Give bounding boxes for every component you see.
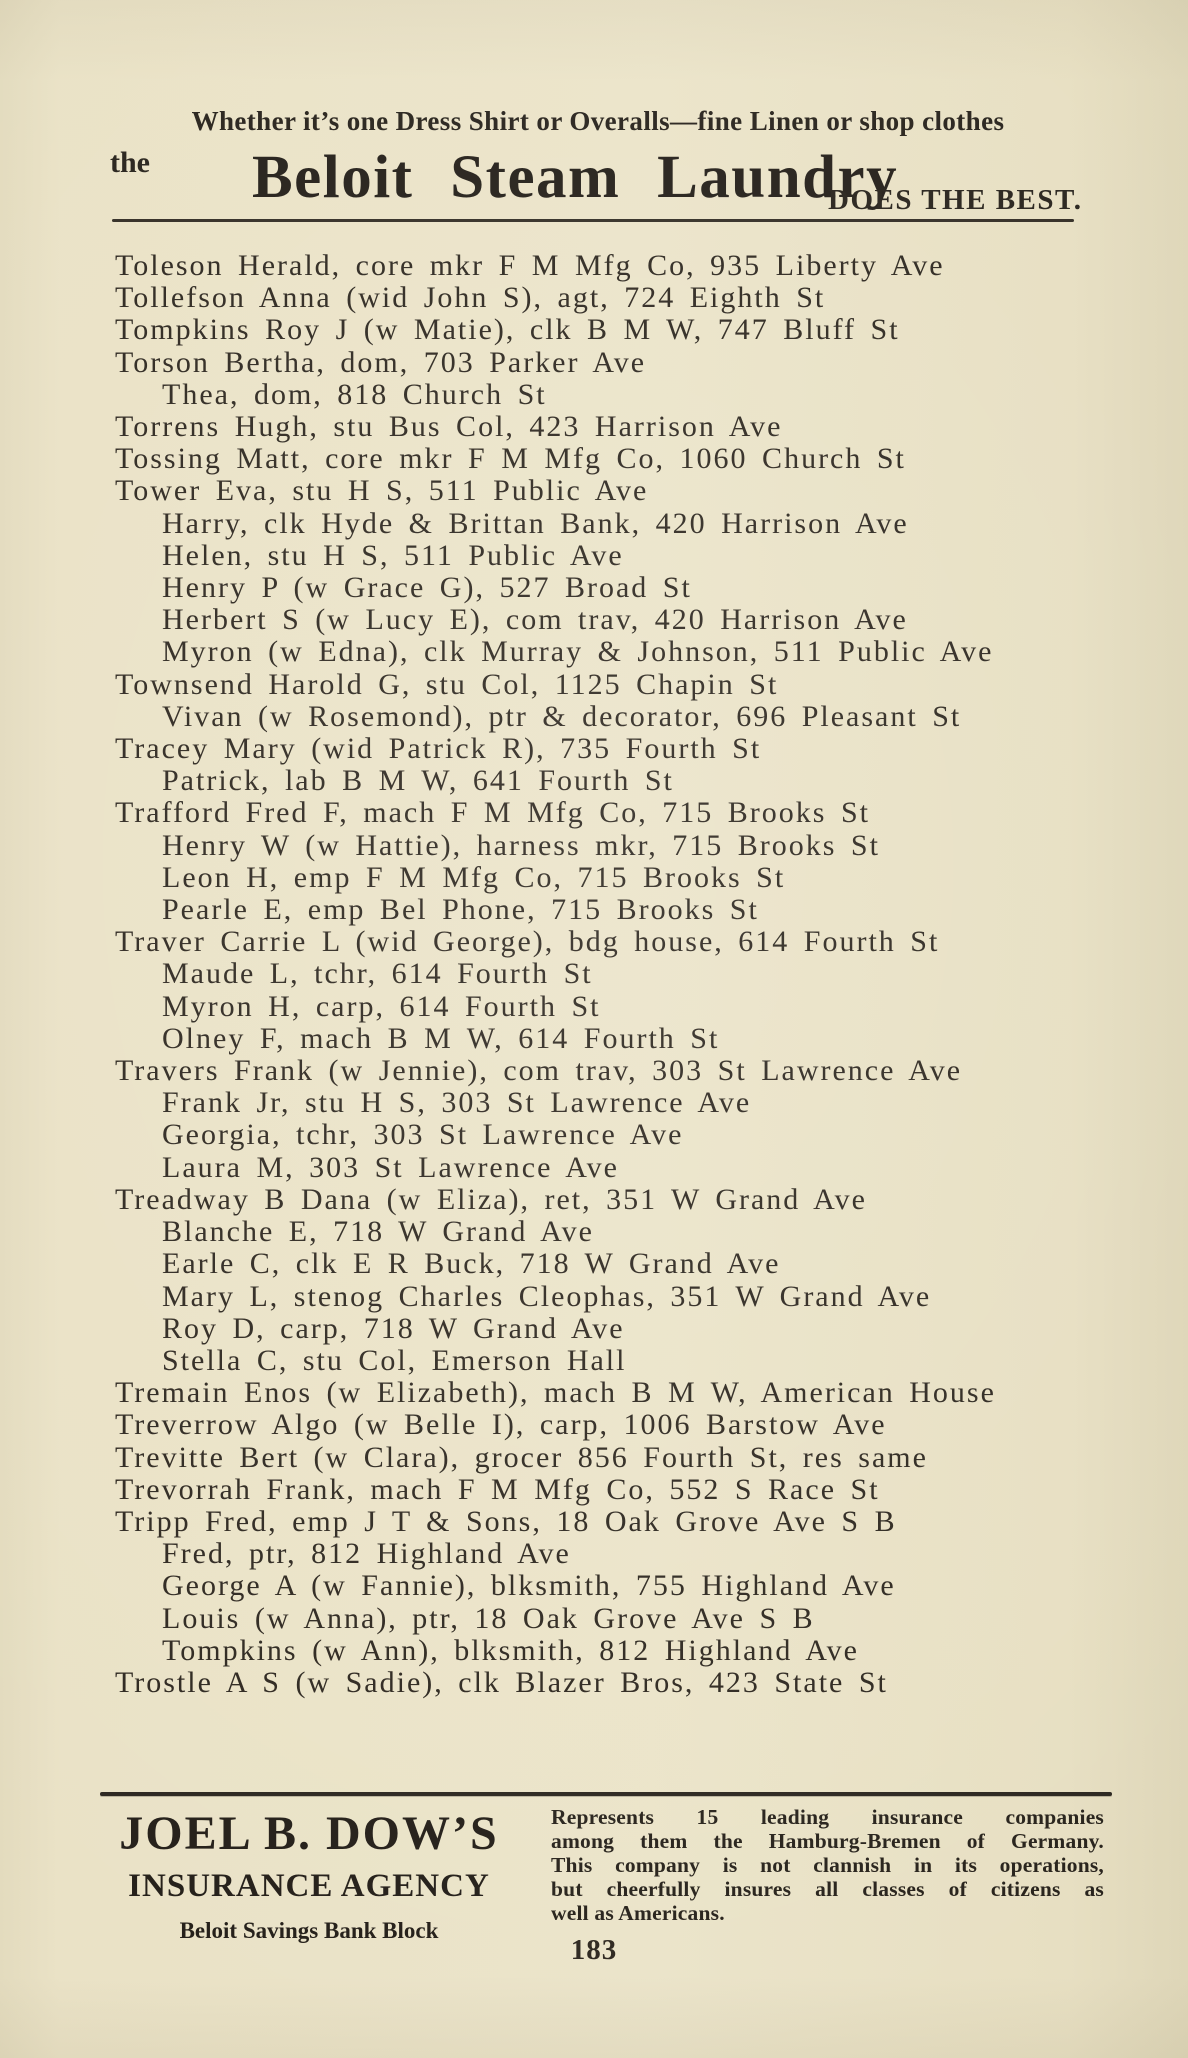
directory-entry: Torson Bertha, dom, 703 Parker Ave — [115, 347, 1083, 379]
directory-entry: Trostle A S (w Sadie), clk Blazer Bros, … — [115, 1667, 1083, 1699]
directory-entry: Travers Frank (w Jennie), com trav, 303 … — [115, 1055, 1083, 1087]
directory-page: Whether it’s one Dress Shirt or Overalls… — [0, 0, 1188, 2058]
bottom-ad-description-line: among them the Hamburg-Bremen of Germany… — [551, 1829, 1104, 1853]
directory-entry: Fred, ptr, 812 Highland Ave — [115, 1538, 1083, 1570]
directory-entry: Tracey Mary (wid Patrick R), 735 Fourth … — [115, 733, 1083, 765]
top-ad-claim: DOES THE BEST. — [828, 184, 1082, 217]
directory-entry: Mary L, stenog Charles Cleophas, 351 W G… — [115, 1281, 1083, 1313]
top-ad-tagline: Whether it’s one Dress Shirt or Overalls… — [120, 106, 1076, 137]
directory-entry: Stella C, stu Col, Emerson Hall — [115, 1345, 1083, 1377]
directory-entry: Georgia, tchr, 303 St Lawrence Ave — [115, 1119, 1083, 1151]
directory-entry: Tossing Matt, core mkr F M Mfg Co, 1060 … — [115, 443, 1083, 475]
directory-entry: Trevorrah Frank, mach F M Mfg Co, 552 S … — [115, 1474, 1083, 1506]
bottom-ad-left-block: JOEL B. DOW’S INSURANCE AGENCY Beloit Sa… — [104, 1806, 514, 1944]
directory-entry: Trevitte Bert (w Clara), grocer 856 Four… — [115, 1442, 1083, 1474]
directory-entry: Earle C, clk E R Buck, 718 W Grand Ave — [115, 1248, 1083, 1280]
bottom-ad-description-line: well as Americans. — [551, 1901, 1104, 1925]
directory-entry: Treadway B Dana (w Eliza), ret, 351 W Gr… — [115, 1184, 1083, 1216]
directory-entry: Leon H, emp F M Mfg Co, 715 Brooks St — [115, 862, 1083, 894]
directory-entry: Patrick, lab B M W, 641 Fourth St — [115, 765, 1083, 797]
bottom-ad-description: Represents 15 leading insurance companie… — [551, 1805, 1104, 1925]
directory-entry: Tollefson Anna (wid John S), agt, 724 Ei… — [115, 282, 1083, 314]
directory-entry: Myron (w Edna), clk Murray & Johnson, 51… — [115, 636, 1083, 668]
directory-entry: Myron H, carp, 614 Fourth St — [115, 991, 1083, 1023]
directory-entry: Vivan (w Rosemond), ptr & decorator, 696… — [115, 701, 1083, 733]
directory-entry: Thea, dom, 818 Church St — [115, 379, 1083, 411]
directory-entry: Herbert S (w Lucy E), com trav, 420 Harr… — [115, 604, 1083, 636]
bottom-ad-description-line: This company is not clannish in its oper… — [551, 1853, 1104, 1877]
directory-entry: Henry W (w Hattie), harness mkr, 715 Bro… — [115, 830, 1083, 862]
directory-entry: Traver Carrie L (wid George), bdg house,… — [115, 926, 1083, 958]
directory-entry: George A (w Fannie), blksmith, 755 Highl… — [115, 1570, 1083, 1602]
directory-entry: Louis (w Anna), ptr, 18 Oak Grove Ave S … — [115, 1603, 1083, 1635]
bottom-divider-rule — [100, 1792, 1112, 1796]
directory-entry: Roy D, carp, 718 W Grand Ave — [115, 1313, 1083, 1345]
directory-entry: Toleson Herald, core mkr F M Mfg Co, 935… — [115, 250, 1083, 282]
directory-entry: Tompkins (w Ann), blksmith, 812 Highland… — [115, 1635, 1083, 1667]
directory-entry: Tompkins Roy J (w Matie), clk B M W, 747… — [115, 314, 1083, 346]
bottom-ad-subtitle: INSURANCE AGENCY — [104, 1868, 514, 1905]
directory-entry: Treverrow Algo (w Belle I), carp, 1006 B… — [115, 1409, 1083, 1441]
directory-entry: Pearle E, emp Bel Phone, 715 Brooks St — [115, 894, 1083, 926]
directory-entry: Blanche E, 718 W Grand Ave — [115, 1216, 1083, 1248]
directory-list: Toleson Herald, core mkr F M Mfg Co, 935… — [115, 250, 1083, 1699]
bottom-ad-title: JOEL B. DOW’S — [104, 1806, 514, 1861]
directory-entry: Henry P (w Grace G), 527 Broad St — [115, 572, 1083, 604]
bottom-ad-description-line: Represents 15 leading insurance companie… — [551, 1805, 1104, 1829]
directory-entry: Maude L, tchr, 614 Fourth St — [115, 958, 1083, 990]
top-divider-rule — [112, 219, 1074, 222]
directory-entry: Trafford Fred F, mach F M Mfg Co, 715 Br… — [115, 797, 1083, 829]
directory-entry: Torrens Hugh, stu Bus Col, 423 Harrison … — [115, 411, 1083, 443]
top-ad-prefix: the — [110, 146, 150, 180]
directory-entry: Olney F, mach B M W, 614 Fourth St — [115, 1023, 1083, 1055]
directory-entry: Frank Jr, stu H S, 303 St Lawrence Ave — [115, 1087, 1083, 1119]
bottom-ad-description-line: but cheerfully insures all classes of ci… — [551, 1877, 1104, 1901]
directory-entry: Tripp Fred, emp J T & Sons, 18 Oak Grove… — [115, 1506, 1083, 1538]
directory-entry: Townsend Harold G, stu Col, 1125 Chapin … — [115, 669, 1083, 701]
directory-entry: Tower Eva, stu H S, 511 Public Ave — [115, 475, 1083, 507]
directory-entry: Laura M, 303 St Lawrence Ave — [115, 1152, 1083, 1184]
top-ad-brand-name: Beloit Steam Laundry — [252, 143, 898, 213]
directory-entry: Harry, clk Hyde & Brittan Bank, 420 Harr… — [115, 508, 1083, 540]
directory-entry: Tremain Enos (w Elizabeth), mach B M W, … — [115, 1377, 1083, 1409]
directory-entry: Helen, stu H S, 511 Public Ave — [115, 540, 1083, 572]
page-number: 183 — [0, 1934, 1188, 1967]
